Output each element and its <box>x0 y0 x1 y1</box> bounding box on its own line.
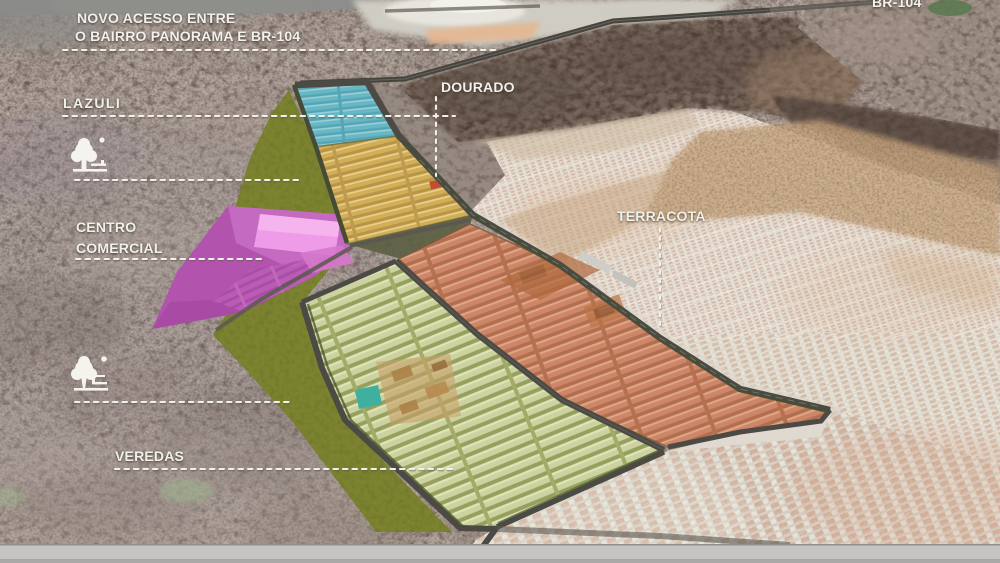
svg-text:VEREDAS: VEREDAS <box>115 448 184 464</box>
svg-text:LAZULI: LAZULI <box>63 95 121 111</box>
svg-text:TERRACOTA: TERRACOTA <box>617 208 706 224</box>
svg-text:COMERCIAL: COMERCIAL <box>76 240 163 256</box>
svg-text:DOURADO: DOURADO <box>441 79 515 95</box>
svg-text:O BAIRRO PANORAMA E BR-104: O BAIRRO PANORAMA E BR-104 <box>75 28 300 44</box>
svg-text:CENTRO: CENTRO <box>76 219 136 235</box>
svg-text:NOVO ACESSO ENTRE: NOVO ACESSO ENTRE <box>77 10 235 26</box>
svg-text:BR-104: BR-104 <box>872 0 921 10</box>
